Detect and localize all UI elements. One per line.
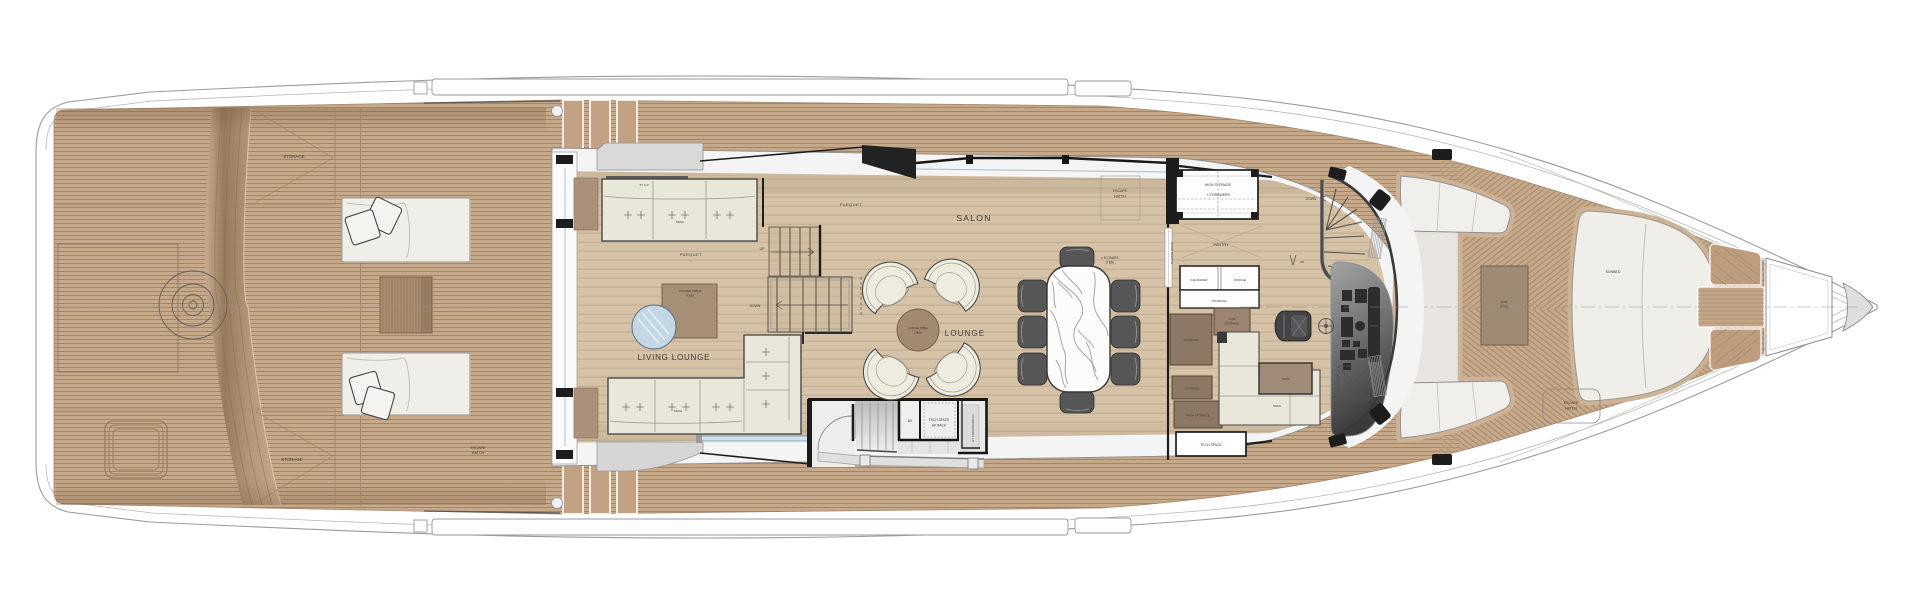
svg-text:DOWN: DOWN xyxy=(1306,197,1317,201)
svg-text:(TBD): (TBD) xyxy=(686,294,694,298)
svg-text:AV: AV xyxy=(908,419,913,423)
svg-text:SALON: SALON xyxy=(956,213,991,223)
svg-text:+ 2 DRAWERS: + 2 DRAWERS xyxy=(1206,193,1230,197)
svg-text:STORAGE: STORAGE xyxy=(1225,322,1240,326)
svg-text:DOWN: DOWN xyxy=(750,304,761,308)
svg-text:STORAGE: STORAGE xyxy=(1183,338,1198,342)
svg-text:COFFEE TABLE: COFFEE TABLE xyxy=(908,326,929,330)
svg-text:HATCH: HATCH xyxy=(472,451,485,455)
svg-text:TV 5 P: TV 5 P xyxy=(639,183,648,187)
svg-text:TECH SPACE: TECH SPACE xyxy=(929,418,951,422)
svg-text:PARQUET: PARQUET xyxy=(840,203,862,207)
svg-text:LOUNGE: LOUNGE xyxy=(945,329,985,338)
svg-text:STORAGE: STORAGE xyxy=(1184,387,1199,391)
svg-text:SOFA: SOFA xyxy=(1273,404,1282,408)
svg-text:(TBD): (TBD) xyxy=(1500,305,1508,309)
svg-text:SOFA: SOFA xyxy=(674,409,683,413)
svg-text:GT 1400x600x300mm: GT 1400x600x300mm xyxy=(971,414,975,442)
svg-text:x 8 CHAIRS: x 8 CHAIRS xyxy=(1101,256,1118,260)
svg-text:SUNBED: SUNBED xyxy=(1606,270,1621,274)
svg-text:HATCH: HATCH xyxy=(1114,195,1126,199)
svg-text:SOFA: SOFA xyxy=(676,220,685,224)
svg-text:LOW: LOW xyxy=(1229,317,1236,321)
svg-text:(TBD): (TBD) xyxy=(914,331,922,335)
svg-text:FRIDGE: FRIDGE xyxy=(1234,278,1246,282)
svg-text:LIVING LOUNGE: LIVING LOUNGE xyxy=(638,353,711,362)
svg-text:STORAGE: STORAGE xyxy=(281,457,302,462)
svg-text:DESK: DESK xyxy=(1282,377,1290,381)
svg-text:STORAGE: STORAGE xyxy=(1211,299,1226,303)
svg-text:PARQUET: PARQUET xyxy=(680,253,702,257)
svg-text:PANTRY: PANTRY xyxy=(1213,243,1229,247)
svg-text:ESCAPE: ESCAPE xyxy=(1564,401,1579,405)
svg-text:SLIDING DOOR: SLIDING DOOR xyxy=(1170,241,1174,264)
svg-text:ICE MAKER: ICE MAKER xyxy=(1190,278,1208,282)
svg-text:AV RACK: AV RACK xyxy=(932,424,947,428)
svg-text:HATCH: HATCH xyxy=(1565,407,1578,411)
svg-text:STORAGE: STORAGE xyxy=(283,154,304,159)
svg-text:HIGH STORAGE: HIGH STORAGE xyxy=(1186,414,1210,418)
svg-text:COFFEE TABLE: COFFEE TABLE xyxy=(679,289,701,293)
svg-text:UP: UP xyxy=(1300,260,1304,264)
svg-text:HIGH STORAGE: HIGH STORAGE xyxy=(1205,183,1232,187)
svg-text:UP: UP xyxy=(760,247,765,251)
svg-text:ESCAPE: ESCAPE xyxy=(471,446,487,450)
svg-text:ESCAPE: ESCAPE xyxy=(1113,189,1128,193)
svg-text:(TBD): (TBD) xyxy=(1106,261,1115,265)
svg-text:TECH SPACE: TECH SPACE xyxy=(1200,443,1222,447)
svg-text:FOR: FOR xyxy=(1501,300,1508,304)
